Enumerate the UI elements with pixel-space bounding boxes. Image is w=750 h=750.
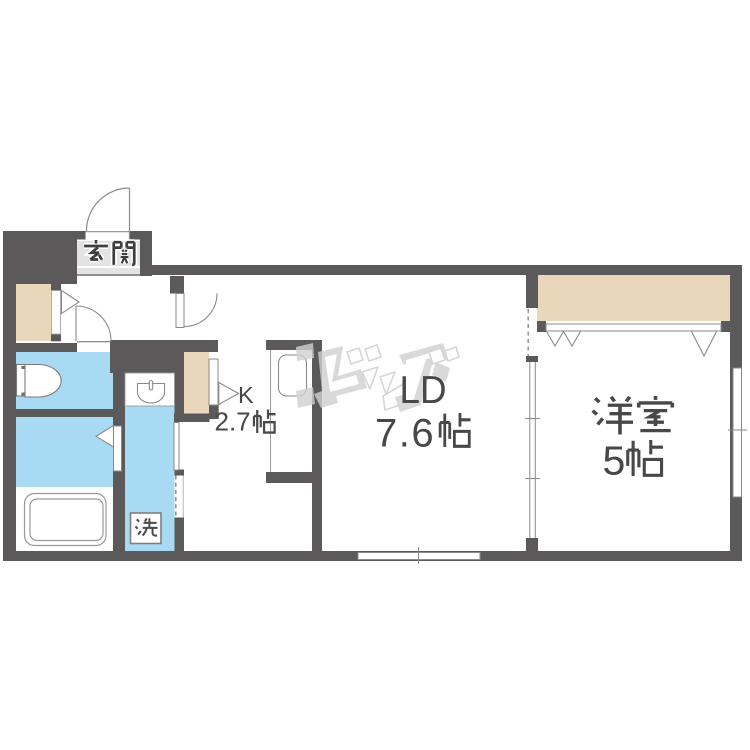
svg-text:LD: LD — [400, 369, 447, 412]
svg-text:K: K — [238, 382, 254, 408]
svg-text:7.6: 7.6 — [375, 412, 435, 456]
svg-text:2.7: 2.7 — [215, 407, 251, 437]
svg-text:5: 5 — [603, 438, 626, 484]
